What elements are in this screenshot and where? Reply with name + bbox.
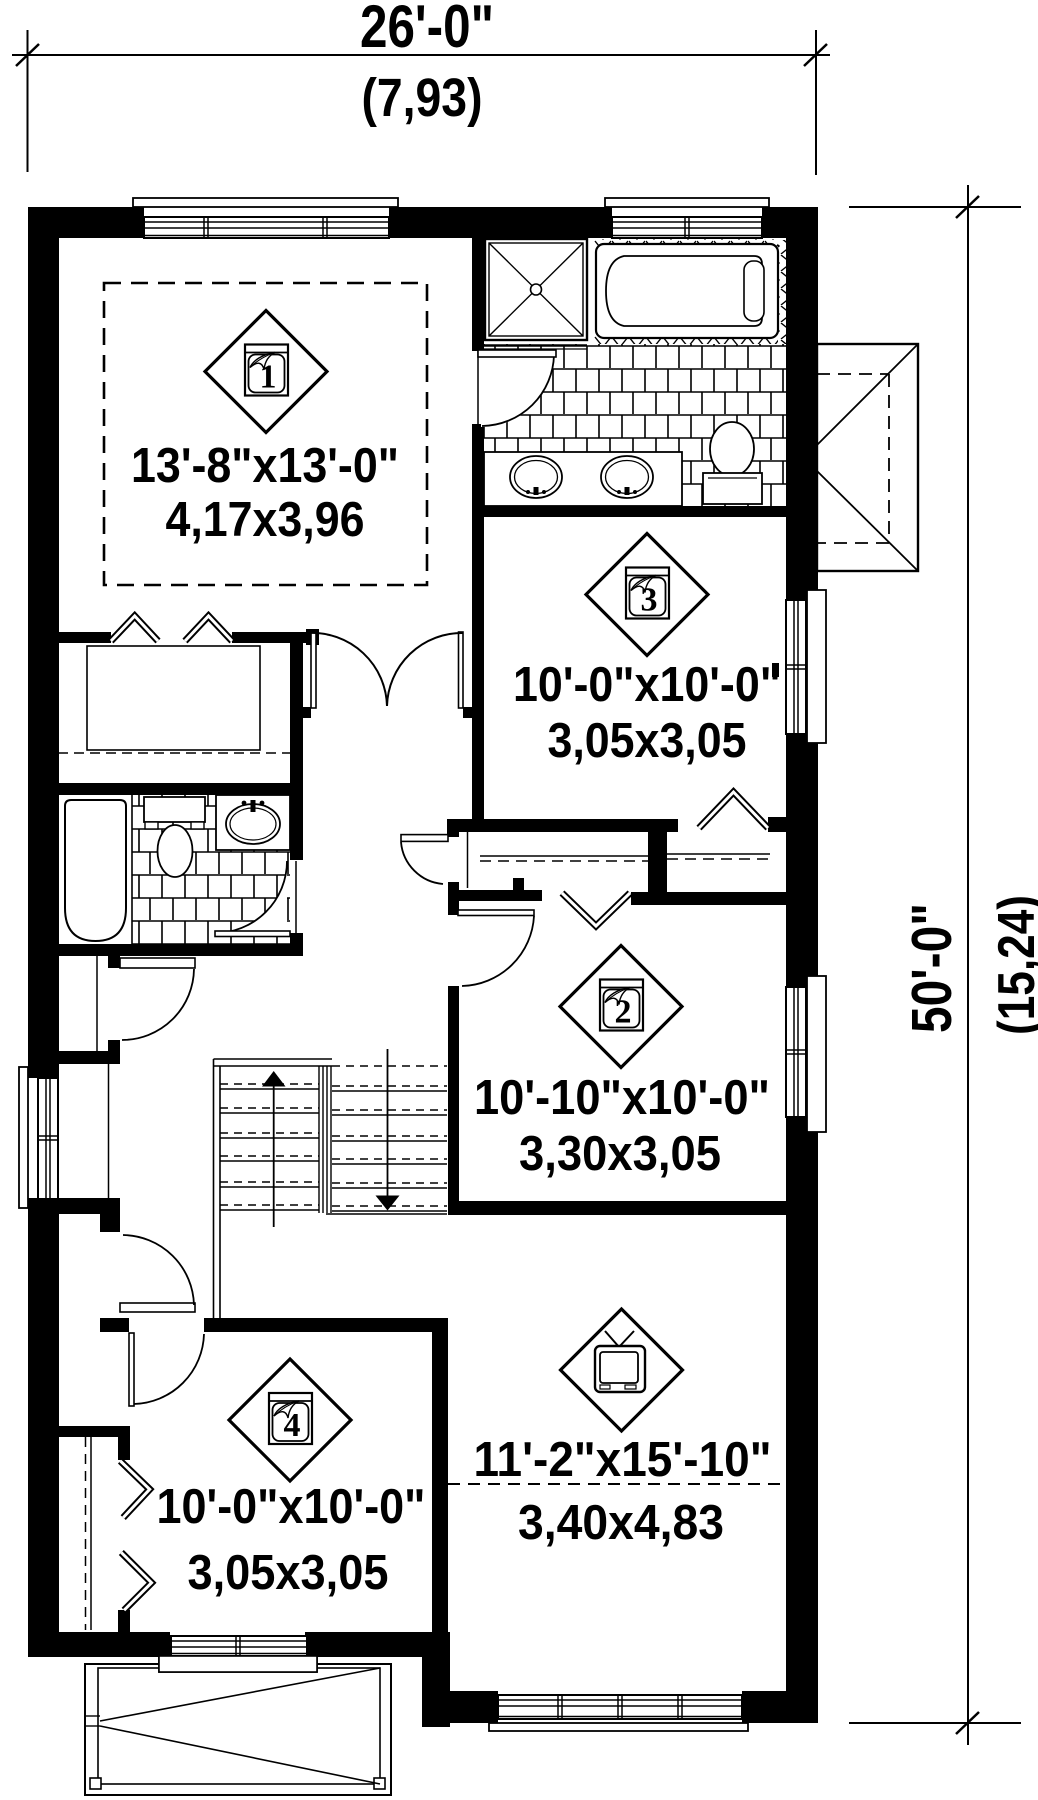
svg-text:10'-10"x10'-0": 10'-10"x10'-0" <box>474 1071 770 1125</box>
svg-text:(15,24): (15,24) <box>988 895 1038 1035</box>
svg-text:4,17x3,96: 4,17x3,96 <box>166 493 365 547</box>
svg-text:3,05x3,05: 3,05x3,05 <box>188 1546 389 1600</box>
svg-text:3: 3 <box>641 582 658 619</box>
svg-text:1: 1 <box>260 359 277 396</box>
svg-text:10'-0"x10'-0": 10'-0"x10'-0" <box>157 1480 426 1534</box>
svg-text:4: 4 <box>284 1407 301 1444</box>
svg-text:3,30x3,05: 3,30x3,05 <box>519 1127 721 1181</box>
svg-text:13'-8"x13'-0": 13'-8"x13'-0" <box>131 439 399 493</box>
svg-text:3,05x3,05: 3,05x3,05 <box>548 714 747 768</box>
svg-text:11'-2"x15'-10": 11'-2"x15'-10" <box>474 1433 772 1487</box>
svg-text:26'-0": 26'-0" <box>360 0 494 60</box>
svg-text:50'-0": 50'-0" <box>900 903 964 1033</box>
svg-text:(7,93): (7,93) <box>362 68 483 128</box>
svg-text:10'-0"x10'-0": 10'-0"x10'-0" <box>513 658 781 712</box>
svg-text:3,40x4,83: 3,40x4,83 <box>518 1496 724 1550</box>
svg-text:2: 2 <box>615 994 632 1031</box>
